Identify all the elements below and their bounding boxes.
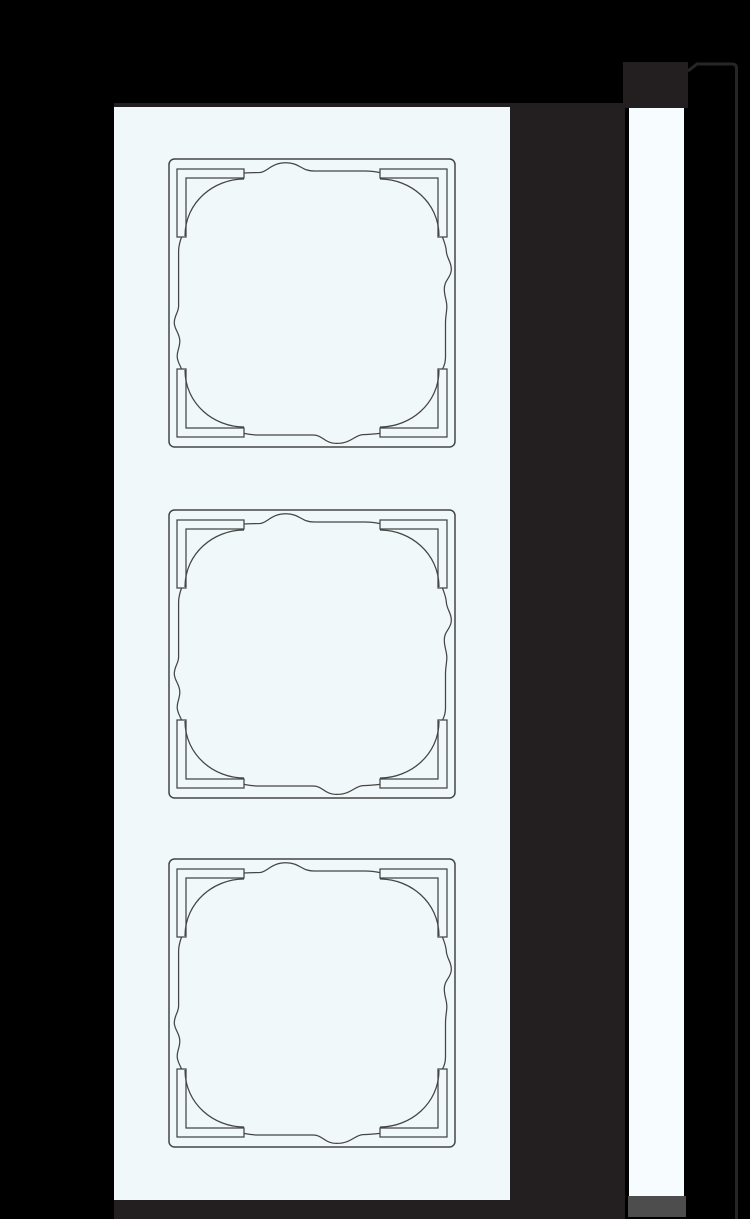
front-panel	[114, 107, 510, 1200]
frame-opening-2	[168, 509, 456, 799]
side-profile-strip	[629, 108, 684, 1196]
frame-opening-1	[168, 158, 456, 448]
frame-opening-3	[168, 858, 456, 1148]
side-profile-outline-path	[688, 64, 737, 1219]
side-profile-cap	[628, 1196, 686, 1217]
profile-tab	[623, 62, 688, 108]
product-drawing-stage	[0, 0, 750, 1219]
